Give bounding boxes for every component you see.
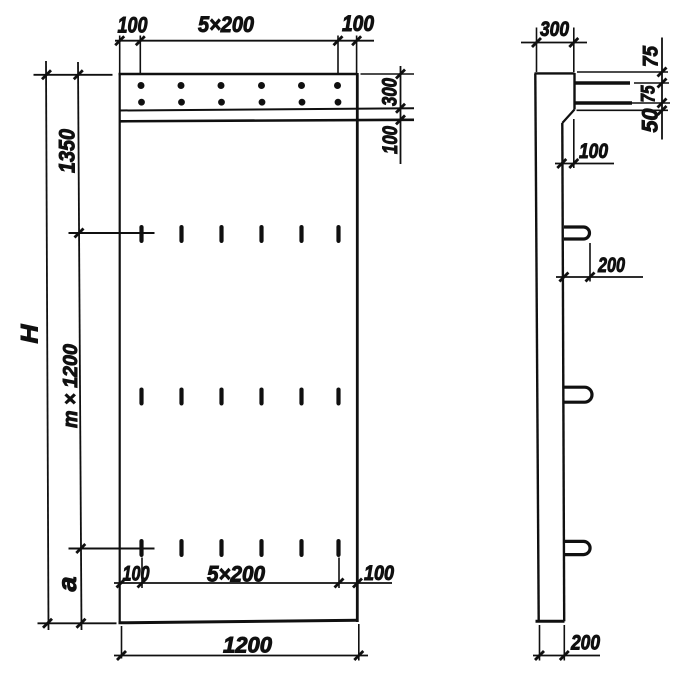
svg-text:1200: 1200 [223,633,273,658]
svg-text:5×200: 5×200 [207,562,266,587]
svg-text:100: 100 [579,140,608,163]
svg-text:75: 75 [639,85,660,102]
svg-text:100: 100 [364,562,394,585]
svg-text:75: 75 [640,46,663,67]
svg-text:5×200: 5×200 [198,12,255,37]
svg-text:100: 100 [123,563,150,586]
svg-text:300: 300 [379,78,402,106]
svg-text:H: H [17,324,44,344]
svg-text:100: 100 [118,13,149,38]
svg-text:50: 50 [638,108,663,133]
svg-text:200: 200 [570,632,600,655]
svg-text:100: 100 [379,126,402,154]
svg-text:300: 300 [540,18,569,41]
svg-text:200: 200 [597,254,625,277]
svg-text:a: a [52,577,82,592]
svg-text:100: 100 [342,11,375,36]
svg-text:1350: 1350 [55,128,80,173]
svg-text:m × 1200: m × 1200 [59,343,82,428]
